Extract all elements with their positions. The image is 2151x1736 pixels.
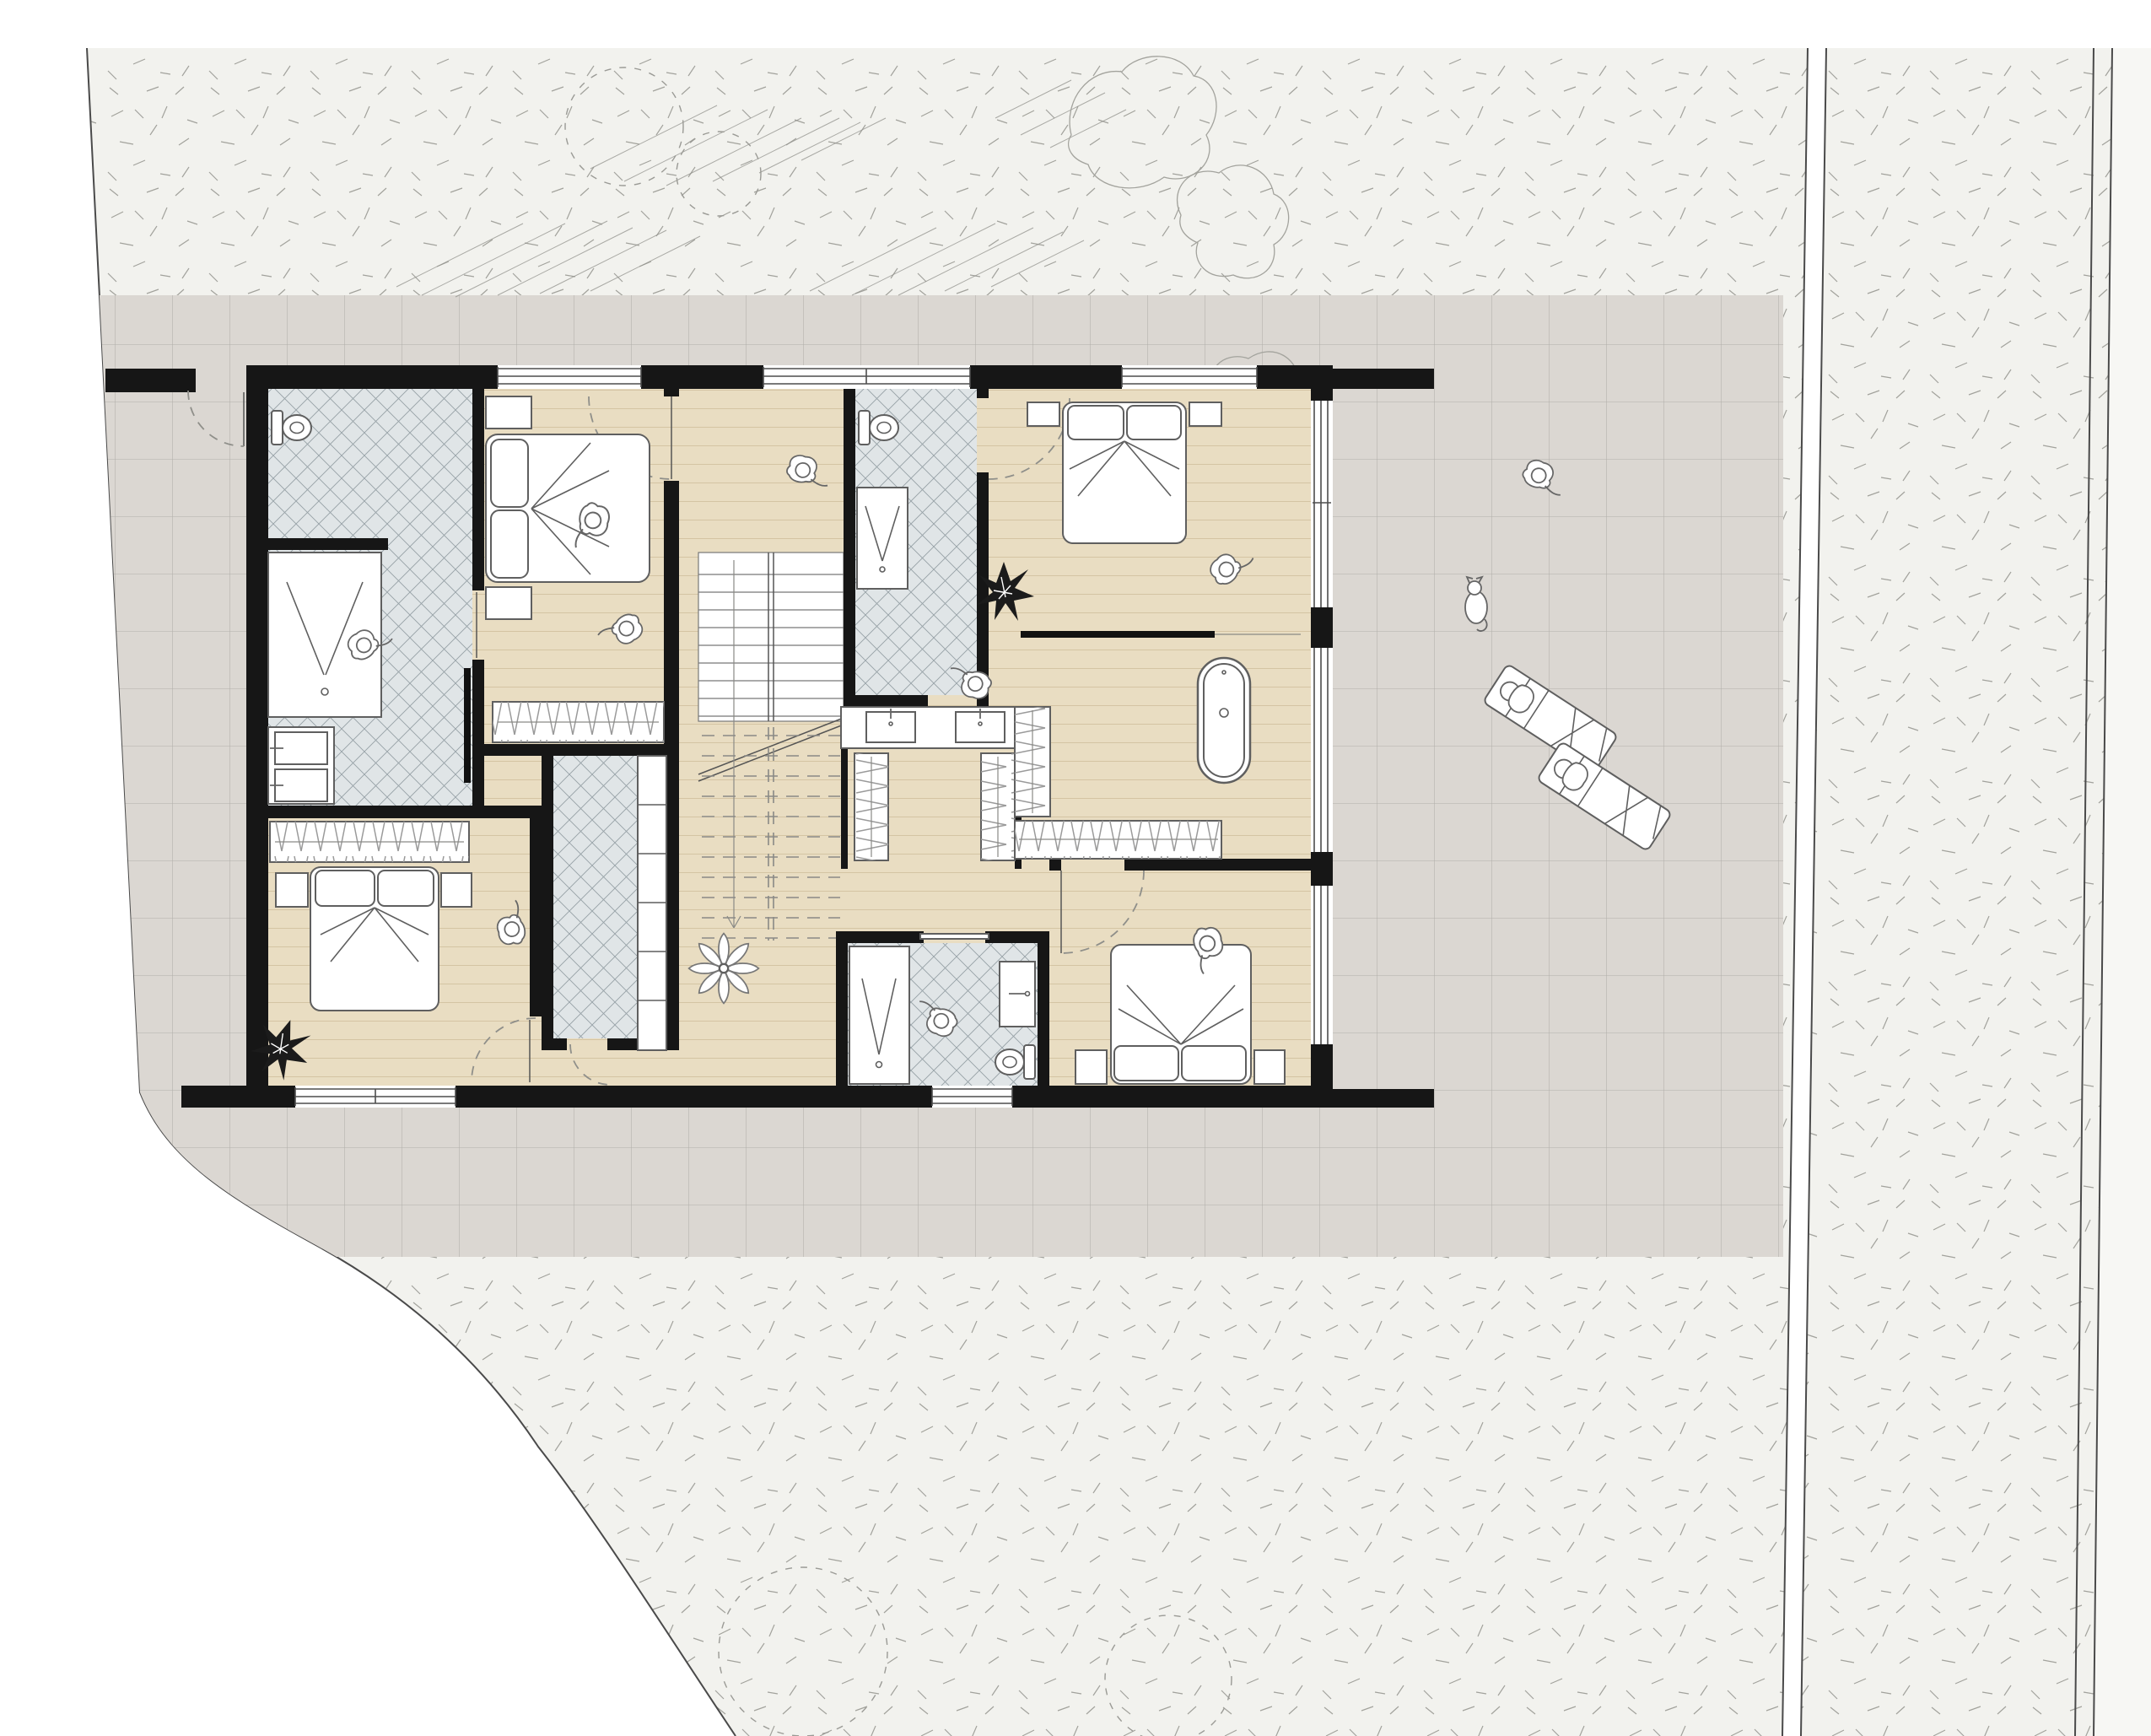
floor-plan-drawing [0,0,2151,1736]
vanity [1000,962,1035,1027]
house [105,365,1434,1108]
utility-closet-floor [553,756,638,1038]
nightstand [486,587,531,619]
tree-circle [399,1605,554,1736]
pillow [1182,1046,1246,1081]
window-top-bedroom-right [1122,365,1257,389]
pillow [1114,1046,1178,1081]
wardrobe [270,822,469,862]
window-top-bedroom-left [498,365,641,389]
double-bed [486,434,650,582]
double-bed [310,867,439,1011]
window-bottom-bathroom [932,1086,1012,1108]
pillow [491,439,528,507]
pillow [315,871,375,906]
pillow [1068,406,1124,439]
nightstand [276,873,308,907]
window-top-hall [763,365,970,389]
floor-plan-page [0,0,2151,1736]
nightstand [1189,402,1221,426]
double-bed [1063,402,1186,543]
sliding-door-bathroom-bottom [920,934,989,939]
vanity-double-basin [268,727,334,804]
glazing-right-upper [1311,401,1333,607]
nightstand [1075,1050,1107,1084]
nightstand [1027,402,1059,426]
shower [857,488,908,589]
flower-plant [689,934,759,1004]
tree-circle [531,1666,650,1736]
pillow [378,871,434,906]
pillow [1127,406,1181,439]
nightstand [441,873,472,907]
wardrobe [493,702,664,742]
nightstand [486,396,531,429]
window-bottom-bedroom-left [295,1086,456,1108]
double-bed [1111,945,1251,1084]
glazing-right-lower [1311,886,1333,1044]
glazing-right-middle [1311,648,1333,852]
freestanding-bathtub [1198,658,1250,783]
garden-wall-stub [105,369,196,392]
shower [849,946,909,1084]
top-wall-extension [1333,369,1434,389]
garden-wall-stub [181,1086,246,1108]
pillow [491,510,528,578]
bottom-wall-extension [1333,1089,1434,1108]
utility-shelving [638,756,666,1050]
towel-radiator [464,668,471,783]
nightstand [1254,1050,1285,1084]
